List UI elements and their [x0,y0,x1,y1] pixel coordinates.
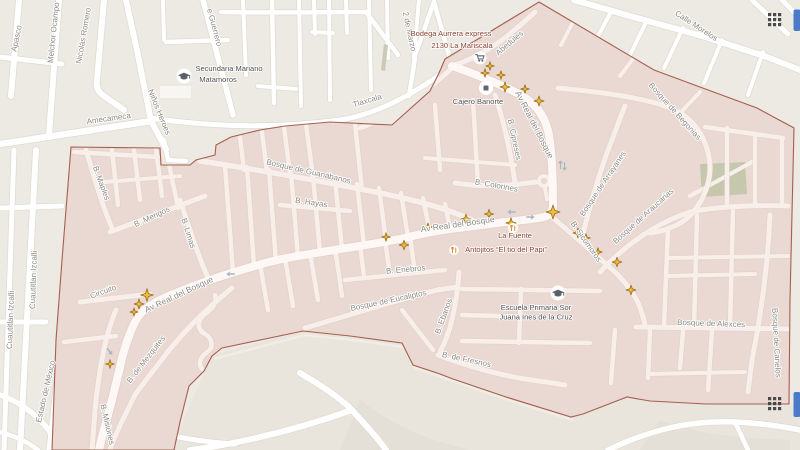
svg-text:2130 La Mariscala: 2130 La Mariscala [431,41,493,50]
svg-text:Antojitos “El tio del Papi”: Antojitos “El tio del Papi” [465,245,547,254]
svg-text:Juana Ines de la Cruz: Juana Ines de la Cruz [500,313,573,322]
svg-text:Secundaria Mariano: Secundaria Mariano [195,64,262,73]
svg-text:Bodega Aurrera express: Bodega Aurrera express [411,29,492,38]
svg-text:Cajero Banorte: Cajero Banorte [453,97,503,106]
svg-text:Escuela Primaria Sor: Escuela Primaria Sor [501,303,572,312]
svg-text:La Fuente: La Fuente [498,231,532,240]
svg-text:Matamoros: Matamoros [199,75,237,84]
